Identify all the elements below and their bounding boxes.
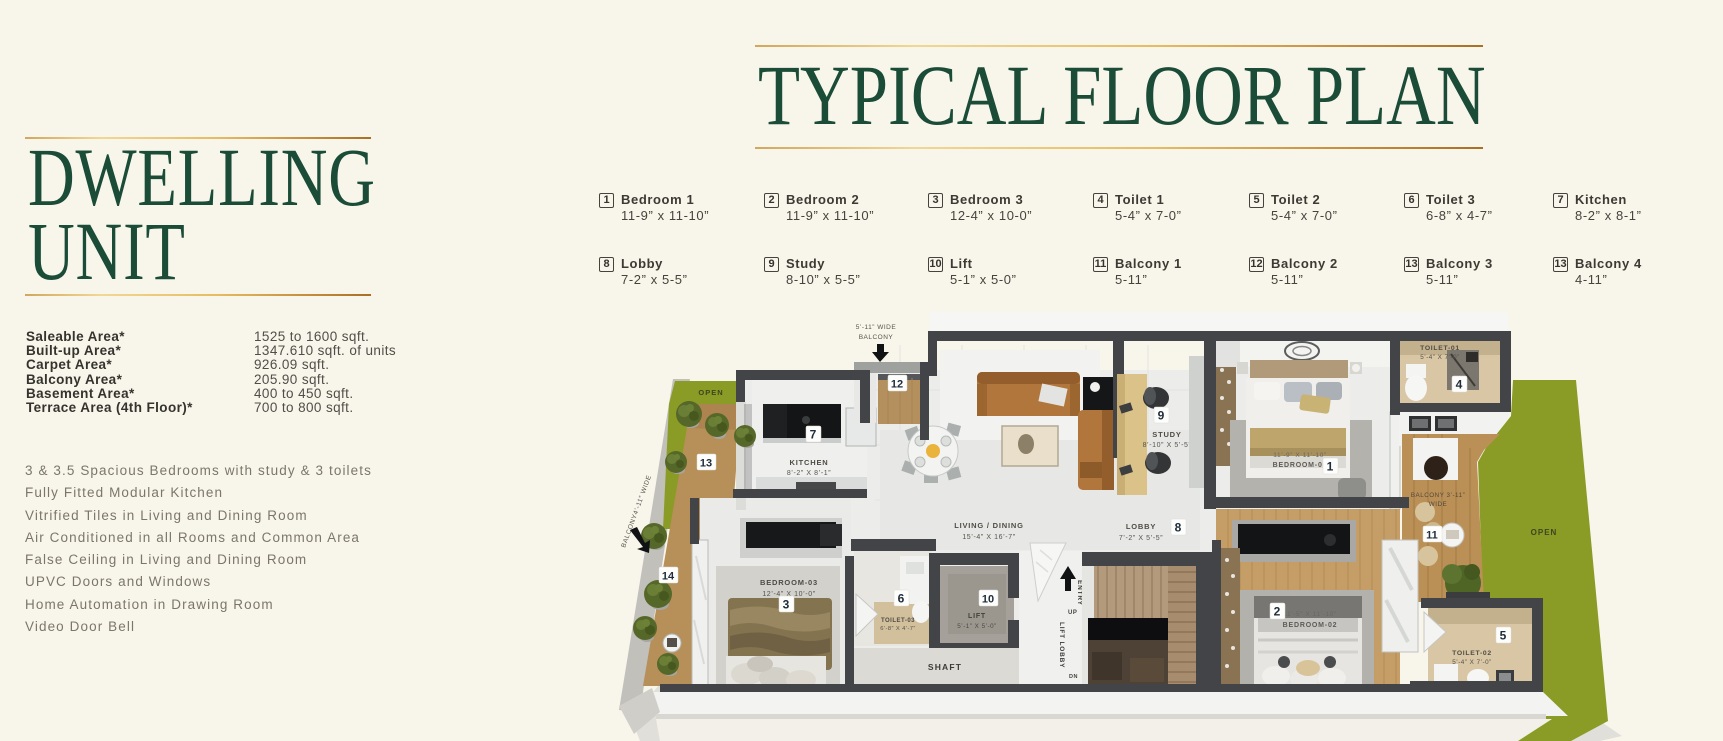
svg-text:ENTRY: ENTRY (1076, 580, 1083, 606)
svg-text:2: 2 (1274, 605, 1281, 619)
svg-text:BALCONY 3’-11”: BALCONY 3’-11” (1411, 492, 1465, 499)
svg-text:5’-4” X 7’-0”: 5’-4” X 7’-0” (1420, 354, 1459, 361)
svg-text:OPEN: OPEN (698, 388, 723, 397)
svg-text:TOILET-02: TOILET-02 (1452, 650, 1492, 657)
svg-text:UP: UP (1068, 610, 1077, 616)
svg-text:LOBBY: LOBBY (1126, 522, 1156, 531)
svg-text:5’-11” WIDE: 5’-11” WIDE (856, 324, 897, 331)
svg-text:KITCHEN: KITCHEN (790, 458, 829, 467)
svg-text:11’-5” X 11’-10”: 11’-5” X 11’-10” (1283, 611, 1336, 618)
svg-text:BEDROOM-02: BEDROOM-02 (1283, 622, 1338, 629)
svg-text:7’-2” X 5’-5”: 7’-2” X 5’-5” (1119, 535, 1163, 542)
svg-text:BALCONY: BALCONY (859, 334, 894, 341)
svg-text:5: 5 (1500, 629, 1507, 643)
svg-text:SHAFT: SHAFT (928, 662, 962, 672)
svg-text:7: 7 (810, 428, 817, 442)
svg-text:14: 14 (662, 571, 675, 583)
svg-text:OPEN: OPEN (1531, 528, 1558, 537)
svg-text:LIVING / DINING: LIVING / DINING (954, 521, 1024, 530)
svg-text:8’-10” X 5’-5”: 8’-10” X 5’-5” (1143, 442, 1192, 449)
svg-text:BEDROOM-03: BEDROOM-03 (760, 578, 818, 587)
svg-text:8: 8 (1175, 521, 1182, 535)
svg-text:TOILET-01: TOILET-01 (1420, 345, 1460, 352)
svg-text:LIFT: LIFT (968, 613, 986, 620)
svg-text:WIDE: WIDE (1429, 501, 1447, 508)
svg-text:TOILET-03: TOILET-03 (881, 618, 915, 624)
svg-text:4: 4 (1456, 378, 1463, 392)
svg-text:BEDROOM-01: BEDROOM-01 (1273, 462, 1328, 469)
svg-text:8’-2” X 8’-1”: 8’-2” X 8’-1” (787, 470, 831, 477)
svg-text:5’-4” X 7’-0”: 5’-4” X 7’-0” (1452, 659, 1491, 666)
svg-text:12: 12 (891, 379, 903, 391)
svg-text:15’-4” X 16’-7”: 15’-4” X 16’-7” (962, 534, 1015, 541)
svg-text:9: 9 (1158, 409, 1165, 423)
svg-text:6: 6 (898, 592, 905, 606)
svg-text:10: 10 (982, 594, 994, 606)
svg-text:13: 13 (700, 458, 712, 470)
svg-text:LIFT LOBBY: LIFT LOBBY (1058, 622, 1065, 668)
svg-text:11’-9” X 11’-10”: 11’-9” X 11’-10” (1273, 452, 1326, 459)
svg-text:STUDY: STUDY (1152, 430, 1181, 439)
svg-text:3: 3 (783, 598, 790, 612)
svg-text:11: 11 (1426, 530, 1438, 542)
svg-text:6’-8” X 4’-7”: 6’-8” X 4’-7” (880, 626, 915, 632)
svg-text:DN: DN (1069, 674, 1078, 680)
svg-text:1: 1 (1327, 460, 1334, 474)
svg-text:5’-1” X 5’-0”: 5’-1” X 5’-0” (957, 623, 996, 630)
